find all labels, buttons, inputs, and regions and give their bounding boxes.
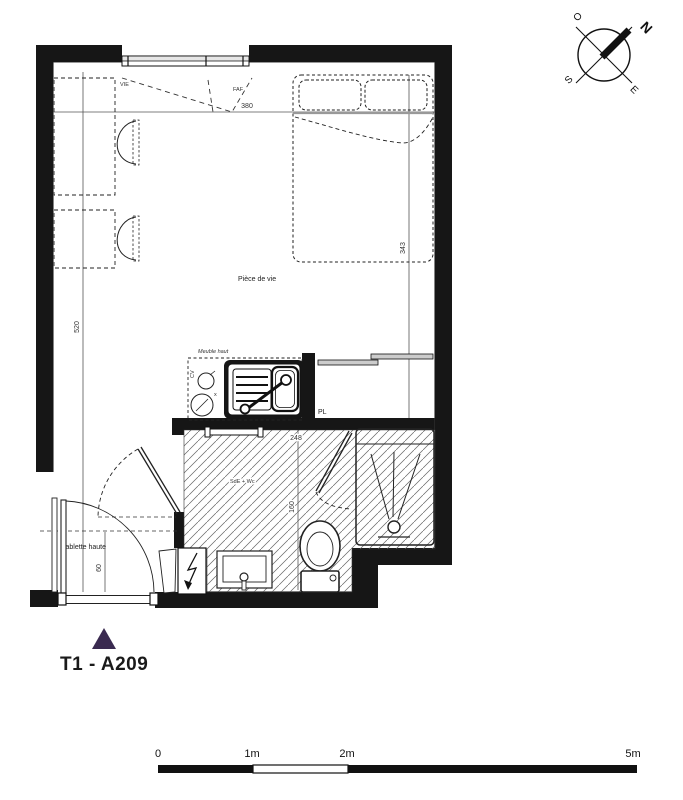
bathroom-door [98, 447, 180, 517]
shelf-edge [52, 498, 57, 592]
scale-5m: 5m [625, 748, 640, 760]
dim-bath-height: 160 [289, 501, 296, 513]
compass-s: S [563, 74, 576, 87]
bathroom: SdE + Wc 248 160 [98, 427, 435, 594]
closet: PL [318, 354, 433, 416]
bed-outline [293, 75, 433, 262]
bed [293, 75, 433, 262]
wall-bath-door-bottom-stub [174, 512, 184, 548]
dim-bath-width: 248 [290, 435, 302, 442]
door-jamb-right [150, 593, 158, 605]
entry-door [58, 500, 158, 605]
floor-plan-page: VIE FAF 380 343 520 Pièce de vie Meuble … [0, 0, 683, 800]
wall-right [435, 45, 452, 565]
compass-e: E [628, 84, 641, 97]
left-furniture [54, 78, 139, 268]
door-jamb-left [58, 593, 66, 605]
scale-0: 0 [155, 748, 161, 760]
wall-left [36, 45, 53, 472]
dim-bed-wall: 343 [400, 242, 407, 254]
towel-rail [205, 427, 263, 437]
wall-bottom-left-stub [30, 590, 58, 607]
dim-room-height: 520 [74, 321, 81, 333]
wall-bath-door-top-stub [172, 418, 184, 435]
desk-upper [54, 78, 115, 195]
toilet-button [330, 575, 336, 581]
faucet-base [241, 405, 250, 414]
hob-small [198, 373, 214, 389]
room-label-bath: SdE + Wc [230, 479, 255, 485]
chair-upper-back [133, 120, 139, 165]
bed-fold [295, 117, 433, 143]
sink-unit [224, 360, 304, 419]
kitchen-cv-label: CV [190, 370, 196, 378]
wall-top-right [249, 45, 452, 62]
floor-plan-svg: VIE FAF 380 343 520 Pièce de vie Meuble … [0, 0, 683, 800]
basin-tap [240, 573, 248, 581]
washbasin [217, 551, 272, 590]
closet-slide-door-1 [318, 360, 378, 365]
window: VIE FAF [120, 56, 252, 112]
unit-label: T1 - A209 [60, 654, 148, 675]
kitchen: Meuble haut CV x [188, 349, 304, 420]
chair-lower-back [133, 216, 139, 261]
cabinet-label: Meuble haut [198, 349, 229, 355]
window-label-vie: VIE [120, 82, 129, 88]
electrical-panel [159, 548, 206, 594]
entry: Tablette haute 60 [40, 498, 178, 605]
scale-bar: 0 1m 2m 5m [155, 748, 641, 773]
toilet [300, 521, 340, 592]
kitchen-x-mark: x [214, 392, 217, 398]
scale-1m: 1m [244, 748, 259, 760]
closet-label: PL [318, 409, 327, 416]
window-opening-dashes [122, 78, 252, 112]
compass-n: N [637, 18, 655, 36]
unit-marker: T1 - A209 [60, 628, 148, 675]
compass-rose: N O S E [563, 10, 656, 96]
room-label-living: Pièce de vie [238, 276, 276, 283]
shower-drain [388, 521, 400, 533]
window-label-faf: FAF [233, 87, 244, 93]
dim-shelf-depth: 60 [96, 564, 103, 572]
scale-2m: 2m [339, 748, 354, 760]
shelf-label: Tablette haute [62, 544, 106, 551]
compass-o: O [572, 10, 585, 23]
desk-lower [54, 210, 115, 268]
unit-triangle [92, 628, 116, 649]
closet-slide-door-2 [371, 354, 433, 359]
pillow-left [299, 80, 361, 110]
dim-room-width: 380 [241, 103, 253, 110]
pillow-right [365, 80, 427, 110]
faucet-head [281, 375, 291, 385]
